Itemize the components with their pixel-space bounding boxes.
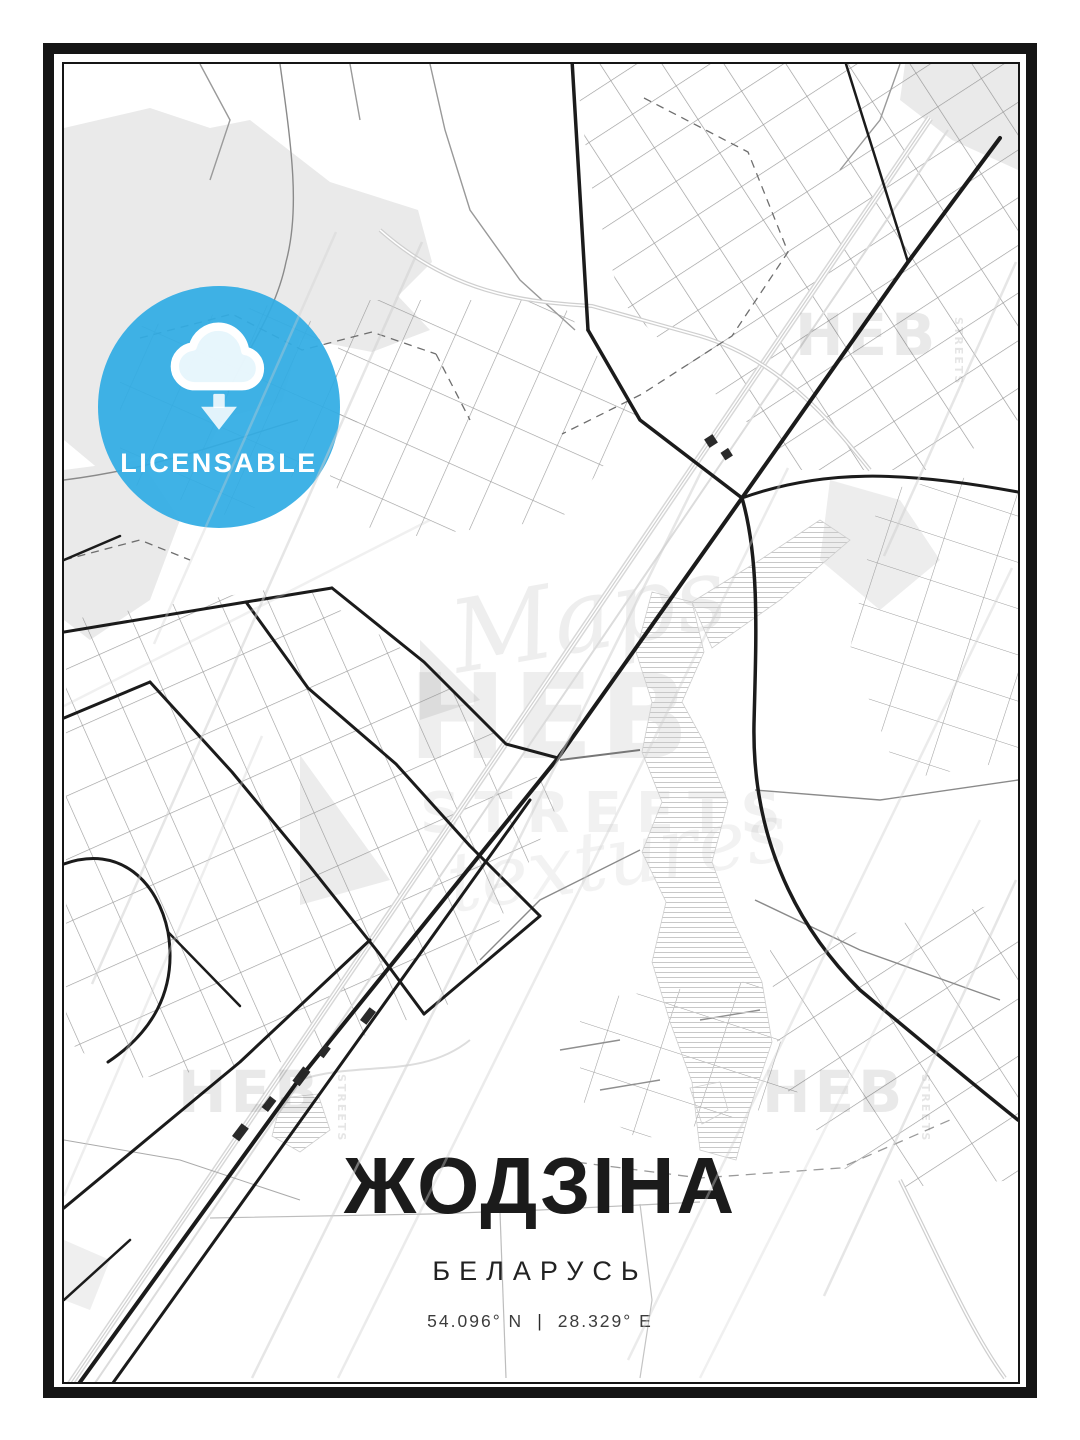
badge-label: LICENSABLE — [120, 448, 318, 479]
watermark-streets-vertical: STREETS — [919, 1074, 932, 1142]
title-block: ЖОДЗІНА БЕЛАРУСЬ 54.096° N|28.329° E — [0, 1146, 1080, 1332]
map-poster: Maps HEB STREETS textures — [0, 0, 1080, 1440]
watermark-heb-small: HEB — [795, 301, 939, 369]
latitude: 54.096° N — [427, 1311, 523, 1331]
coordinate-separator: | — [537, 1311, 544, 1331]
coordinates: 54.096° N|28.329° E — [0, 1311, 1080, 1332]
watermark-heb-small: HEB — [762, 1058, 906, 1126]
licensable-badge: LICENSABLE — [98, 286, 340, 528]
watermark-heb-small: HEB — [178, 1058, 322, 1126]
watermark-streets-vertical: STREETS — [335, 1074, 348, 1142]
longitude: 28.329° E — [558, 1311, 653, 1331]
country-subtitle: БЕЛАРУСЬ — [0, 1256, 1080, 1287]
watermark-streets-vertical: STREETS — [952, 317, 965, 385]
cloud-download-icon — [145, 312, 293, 440]
city-title: ЖОДЗІНА — [0, 1146, 1080, 1226]
